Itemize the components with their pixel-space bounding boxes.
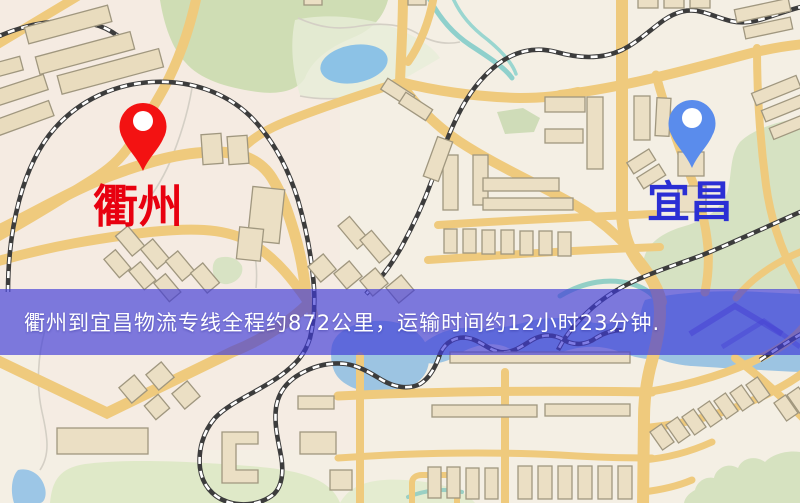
route-info-banner: 衢州到宜昌物流专线全程约872公里，运输时间约12小时23分钟. (0, 289, 800, 355)
blue-pin-center-dot (682, 108, 702, 128)
route-info-text: 衢州到宜昌物流专线全程约872公里，运输时间约12小时23分钟. (24, 307, 660, 337)
destination-city-label: 宜昌 (647, 178, 733, 228)
origin-city-label: 衢州 (93, 180, 183, 233)
logistics-route-map-screen: 衢州 宜昌 衢州到宜昌物流专线全程约872公里，运输时间约12小时23分钟. (0, 0, 800, 503)
red-pin-center-dot (133, 111, 153, 131)
map-canvas[interactable]: 衢州 宜昌 (0, 0, 800, 503)
